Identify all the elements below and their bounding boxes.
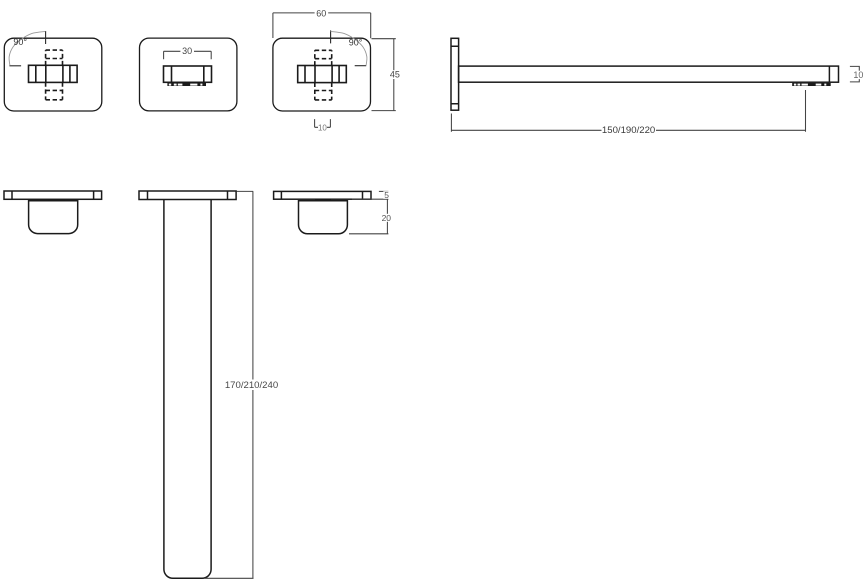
svg-text:5: 5 — [384, 190, 389, 200]
svg-text:45: 45 — [390, 70, 400, 80]
svg-text:10: 10 — [318, 124, 327, 133]
svg-text:90°: 90° — [349, 37, 363, 47]
svg-text:60: 60 — [316, 8, 326, 18]
svg-text:170/210/240: 170/210/240 — [225, 380, 278, 391]
svg-text:30: 30 — [182, 46, 192, 56]
svg-text:150/190/220: 150/190/220 — [602, 125, 655, 136]
svg-text:10: 10 — [853, 70, 863, 80]
svg-text:20: 20 — [382, 213, 392, 223]
svg-text:90°: 90° — [13, 37, 27, 47]
